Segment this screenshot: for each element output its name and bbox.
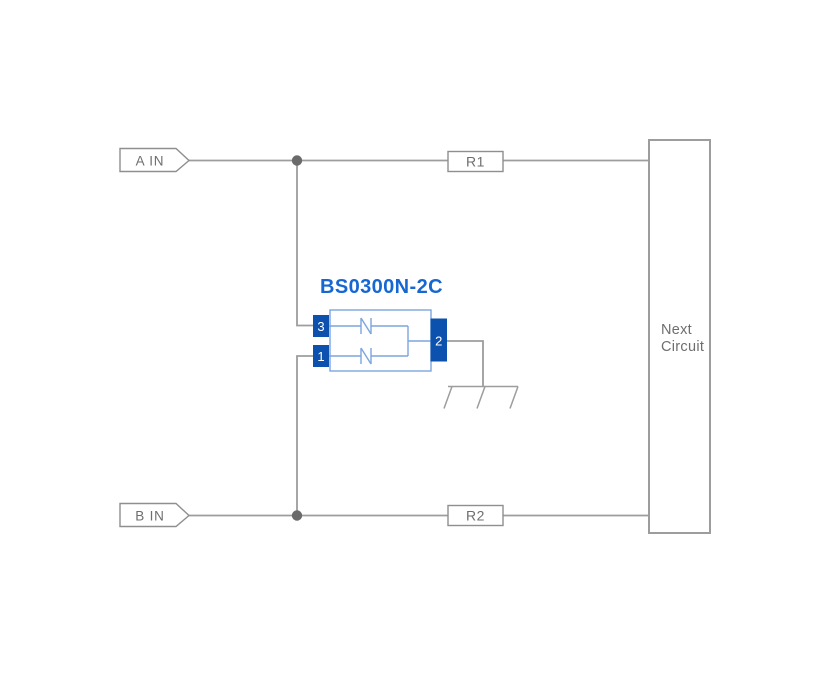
pin-1-number: 1 [317, 349, 324, 364]
component-name-label: BS0300N-2C [320, 276, 443, 298]
pin-1: 1 [313, 345, 329, 367]
pin-2-number: 2 [435, 334, 442, 349]
resistor-r2: R2 [448, 506, 503, 526]
pin-2: 2 [431, 319, 448, 362]
circuit-diagram: A IN B IN R1 R2 Next Circuit BS0300N-2C [0, 0, 832, 675]
ground-icon [444, 387, 518, 409]
next-circuit-label-line2: Circuit [661, 339, 704, 355]
input-a-label: A IN [136, 154, 165, 169]
ground-slash-1 [444, 387, 452, 409]
ground-slash-3 [510, 387, 518, 409]
pin-3-number: 3 [317, 319, 324, 334]
pin-3: 3 [313, 315, 329, 337]
input-b-flag: B IN [120, 504, 189, 527]
input-b-label: B IN [135, 509, 164, 524]
resistor-r1: R1 [448, 152, 503, 172]
wire-pin2-to-ground [446, 341, 483, 386]
wire-b-branch-to-pin1 [297, 356, 314, 516]
input-a-flag: A IN [120, 149, 189, 172]
component-bs0300n-2c: BS0300N-2C 3 1 [313, 276, 447, 371]
schematic-svg: A IN B IN R1 R2 Next Circuit BS0300N-2C [0, 0, 832, 675]
resistor-r1-label: R1 [466, 154, 485, 170]
junction-dot-b [292, 510, 302, 520]
ground-slash-2 [477, 387, 485, 409]
resistor-r2-label: R2 [466, 508, 485, 524]
junction-dot-a [292, 155, 302, 165]
next-circuit-label-line1: Next [661, 322, 692, 338]
next-circuit-block: Next Circuit [649, 140, 710, 533]
wire-a-branch-to-pin3 [297, 161, 314, 326]
